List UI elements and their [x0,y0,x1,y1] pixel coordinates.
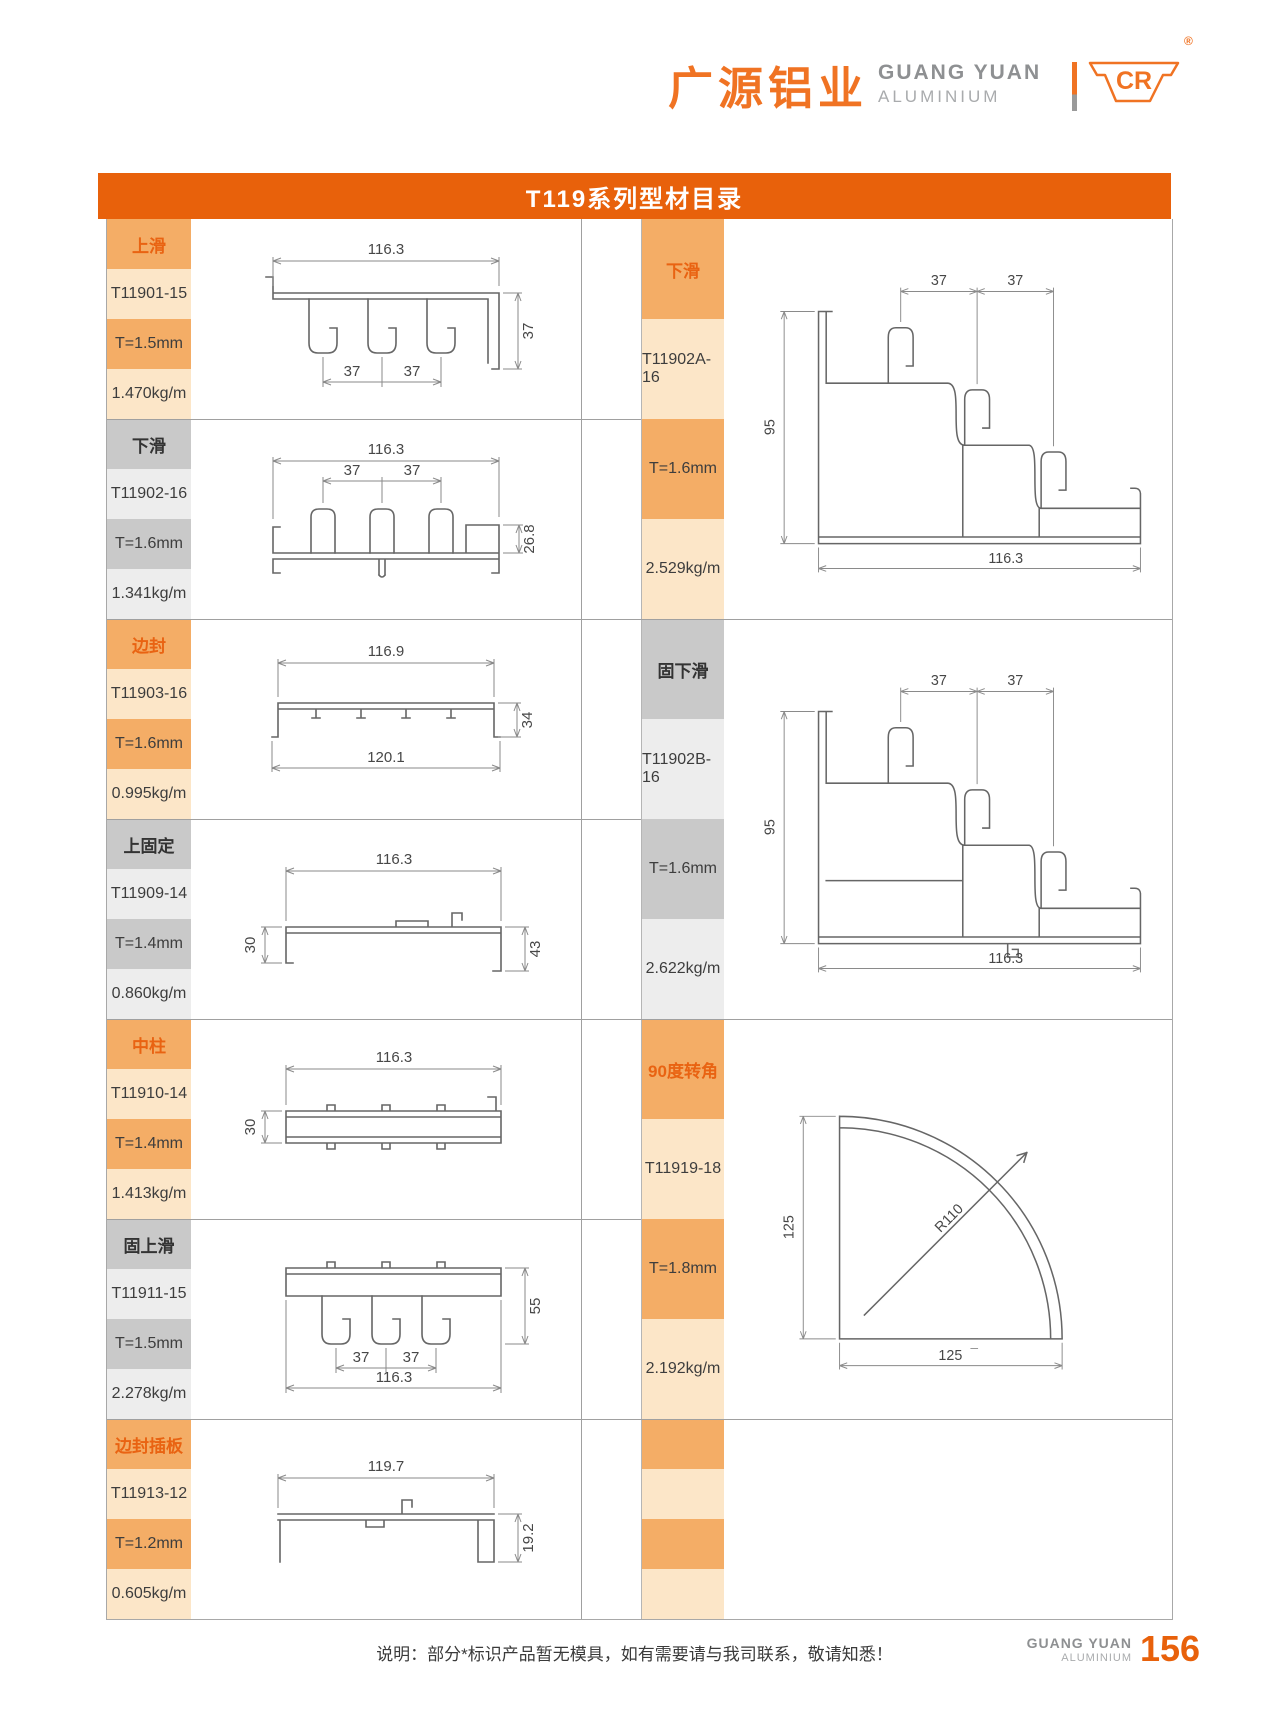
dim-label: 116.3 [368,241,404,258]
profile-drawing-t11902b: 37 37 95 116.3 [723,659,1172,979]
dimension-lines [780,288,1140,573]
thickness-cell: T=1.6mm [642,819,724,919]
dim-label: 37 [404,363,421,380]
thickness-cell: T=1.4mm [107,919,191,969]
drawing-t11913: 119.7 19.2 [191,1419,581,1619]
entry-labels-t11903: 边封 T11903-16 T=1.6mm 0.995kg/m [107,619,191,819]
thickness-cell: T=1.6mm [107,719,191,769]
drawing-t11902a: 37 37 95 116.3 [723,219,1172,619]
weight-cell: 1.470kg/m [107,369,191,419]
profile-outline [273,509,499,577]
category-cell: 上固定 [107,819,191,869]
dim-label: 26.8 [521,524,538,553]
dim-label: 125 [782,1215,798,1239]
thickness-cell: T=1.8mm [642,1219,724,1319]
entry-labels-t11911: 固上滑 T11911-15 T=1.5mm 2.278kg/m [107,1219,191,1419]
profile-outline [266,277,499,369]
category-cell: 固下滑 [642,619,724,719]
brand-name-en: GUANG YUAN [878,62,1041,83]
profile-drawing-t11913: 119.7 19.2 [216,1444,556,1594]
dim-label: 116.9 [368,643,404,660]
thickness-cell: T=1.6mm [107,519,191,569]
weight-cell: 2.529kg/m [642,519,724,619]
dim-label: 37 [404,462,421,479]
dim-label: 37 [931,273,947,289]
thickness-cell: T=1.5mm [107,1319,191,1369]
footer-note: 说明：部分*标识产品暂无模具，如有需要请与我司联系，敬请知悉！ [98,1640,1171,1665]
registered-mark: ® [1184,34,1193,48]
entry-labels-t11902: 下滑 T11902-16 T=1.6mm 1.341kg/m [107,419,191,619]
dimension-lines [273,257,522,387]
code-cell: T11911-15 [107,1269,191,1319]
dim-label: 119.7 [368,1458,404,1475]
empty-cell [642,1419,724,1469]
drawing-t11911: 55 37 37 116.3 [191,1219,581,1419]
dim-label: 120.1 [367,749,405,766]
profile-outline [819,712,1141,957]
entry-labels-t11902a: 下滑 T11902A-16 T=1.6mm 2.529kg/m [642,219,724,619]
drawing-t11901: 116.3 37 37 37 [191,219,581,419]
category-cell: 固上滑 [107,1219,191,1269]
footer-brand: GUANG YUAN ALUMINIUM [1020,1636,1132,1664]
dim-label: 30 [242,937,259,954]
dim-label: 95 [763,819,779,835]
dim-label: 116.3 [376,851,412,868]
weight-cell: 1.413kg/m [107,1169,191,1219]
footer-brand-subtitle: ALUMINIUM [1020,1653,1132,1664]
catalog-title: T119系列型材目录 [526,179,743,214]
thickness-cell: T=1.6mm [642,419,724,519]
profile-outline [286,913,501,971]
dim-label: 37 [1007,673,1023,689]
category-cell: 中柱 [107,1019,191,1069]
entry-labels-t11902b: 固下滑 T11902B-16 T=1.6mm 2.622kg/m [642,619,724,1019]
catalog-page: 广源铝业 GUANG YUAN ALUMINIUM CR ® T119系列型材目… [0,0,1279,1721]
code-cell: T11902-16 [107,469,191,519]
column-divider [581,219,582,1619]
code-cell: T11901-15 [107,269,191,319]
catalog-table: 上滑 T11901-15 T=1.5mm 1.470kg/m 下滑 T11902… [106,219,1173,1620]
category-cell: 边封 [107,619,191,669]
profile-drawing-t11911: 55 37 37 116.3 [216,1226,556,1411]
dimension-lines [780,688,1140,973]
profile-drawing-t11902: 116.3 37 37 26.8 [216,431,556,606]
profile-outline [286,1097,501,1149]
empty-cell [642,1569,724,1619]
weight-cell: 2.278kg/m [107,1369,191,1419]
dim-label: 37 [344,462,361,479]
profile-drawing-t11902a: 37 37 95 116.3 [723,259,1172,579]
weight-cell: 2.622kg/m [642,919,724,1019]
dim-label: 37 [931,673,947,689]
profile-outline [819,312,1141,544]
weight-cell: 1.341kg/m [107,569,191,619]
dim-label: 116.3 [988,951,1023,967]
footer-brand-name: GUANG YUAN [1020,1636,1132,1650]
weight-cell: 0.605kg/m [107,1569,191,1619]
entry-labels-t11913: 边封插板 T11913-12 T=1.2mm 0.605kg/m [107,1419,191,1619]
brand-logo-english: GUANG YUAN ALUMINIUM [878,62,1041,105]
dim-label: 116.3 [376,1049,412,1066]
profile-drawing-t11919: R110 125 125 [723,1059,1172,1379]
code-cell: T11903-16 [107,669,191,719]
dimension-lines [278,1474,522,1562]
drawing-t11910: 116.3 30 [191,1019,581,1219]
dim-label: 34 [519,712,536,729]
drawing-t11902b: 37 37 95 116.3 [723,619,1172,1019]
logo-divider [1072,62,1077,111]
dim-label: 19.2 [520,1523,537,1552]
code-cell: T11910-14 [107,1069,191,1119]
drawing-t11919: R110 125 125 [723,1019,1172,1419]
profile-drawing-t11910: 116.3 30 [216,1031,556,1206]
dim-label: 55 [527,1298,544,1315]
profile-outline [278,1500,494,1562]
dim-label: 37 [353,1349,370,1366]
profile-outline [272,703,500,737]
code-cell: T11902A-16 [642,319,724,419]
catalog-title-bar: T119系列型材目录 [98,173,1171,219]
code-cell: T11909-14 [107,869,191,919]
dim-label: 37 [1007,273,1023,289]
code-cell: T11913-12 [107,1469,191,1519]
category-cell: 下滑 [107,419,191,469]
dim-label: 95 [763,419,779,435]
dim-label: 37 [520,323,537,340]
thickness-cell: T=1.2mm [107,1519,191,1569]
profile-drawing-t11901: 116.3 37 37 37 [216,231,556,406]
category-cell: 90度转角 [642,1019,724,1119]
left-label-column: 上滑 T11901-15 T=1.5mm 1.470kg/m 下滑 T11902… [107,219,191,1619]
dim-label: 37 [344,363,361,380]
brand-cr-logo-icon: CR [1086,56,1182,111]
dim-label: 30 [242,1119,259,1136]
right-label-column: 下滑 T11902A-16 T=1.6mm 2.529kg/m 固下滑 T119… [641,219,724,1619]
dim-label: 125 [938,1348,962,1364]
drawing-t11902: 116.3 37 37 26.8 [191,419,581,619]
empty-cell [642,1519,724,1569]
dim-label: 116.3 [368,441,404,458]
brand-subtitle-en: ALUMINIUM [878,88,1041,105]
drawing-t11909: 116.3 30 43 [191,819,581,1019]
empty-cell [642,1469,724,1519]
weight-cell: 0.995kg/m [107,769,191,819]
category-cell: 下滑 [642,219,724,319]
profile-drawing-t11909: 116.3 30 43 [216,831,556,1006]
dim-label: 116.3 [376,1369,412,1386]
entry-labels-t11919: 90度转角 T11919-18 T=1.8mm 2.192kg/m [642,1019,724,1419]
thickness-cell: T=1.4mm [107,1119,191,1169]
code-cell: T11902B-16 [642,719,724,819]
profile-outline [286,1262,501,1344]
category-cell: 边封插板 [107,1419,191,1469]
brand-logo-chinese: 广源铝业 [668,52,868,117]
entry-labels-t11909: 上固定 T11909-14 T=1.4mm 0.860kg/m [107,819,191,1019]
dim-label: 116.3 [988,551,1023,567]
dimension-lines [261,867,529,971]
dim-label: 37 [403,1349,420,1366]
drawing-t11903: 116.9 34 120.1 [191,619,581,819]
entry-labels-t11910: 中柱 T11910-14 T=1.4mm 1.413kg/m [107,1019,191,1219]
profile-drawing-t11903: 116.9 34 120.1 [216,631,556,806]
code-cell: T11919-18 [642,1119,724,1219]
thickness-cell: T=1.5mm [107,319,191,369]
weight-cell: 0.860kg/m [107,969,191,1019]
category-cell: 上滑 [107,219,191,269]
page-number: 156 [1140,1628,1200,1670]
dim-label: 43 [527,941,544,958]
dimension-lines [261,1065,501,1143]
cr-letters: CR [1116,67,1152,95]
weight-cell: 2.192kg/m [642,1319,724,1419]
entry-labels-t11901: 上滑 T11901-15 T=1.5mm 1.470kg/m [107,219,191,419]
